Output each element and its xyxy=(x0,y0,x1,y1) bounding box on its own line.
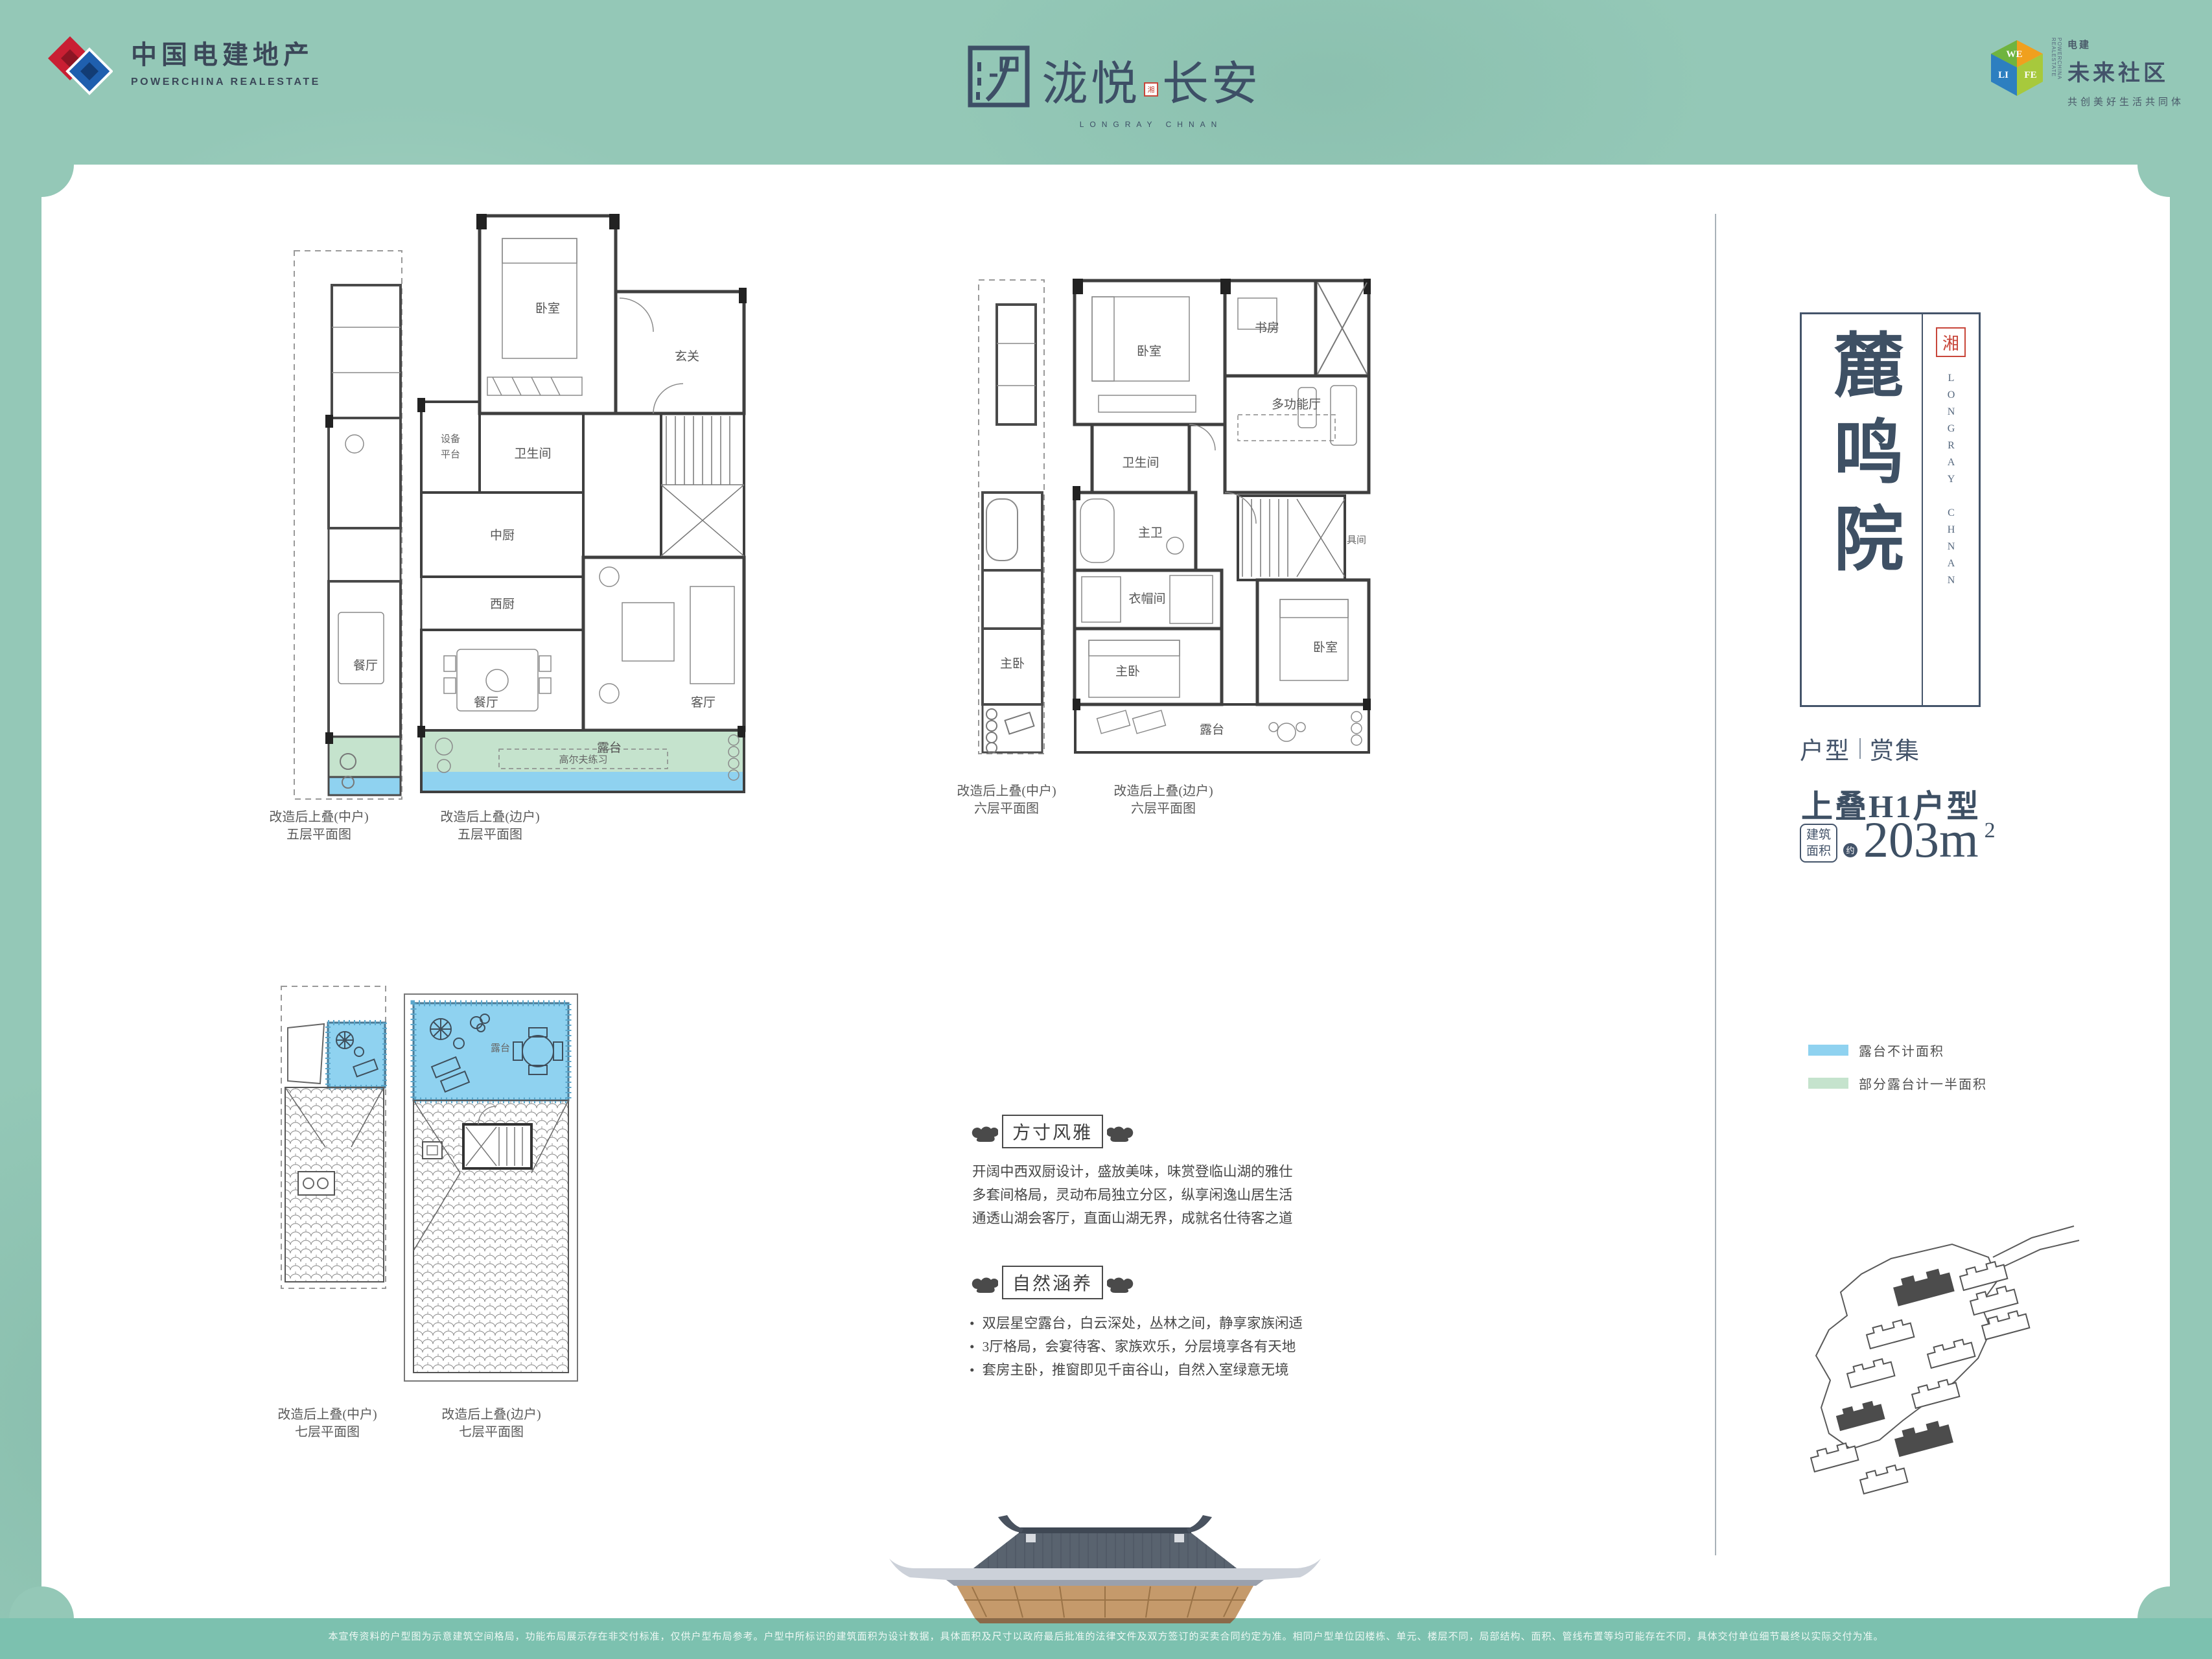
room-label-bath: 卫生间 xyxy=(514,447,551,461)
room-label-study: 书房 xyxy=(1255,321,1279,335)
legend-swatch-green xyxy=(1808,1078,1848,1089)
powerchina-logo: 中国电建地产 POWERCHINA REALESTATE xyxy=(47,34,321,96)
cloud-ornament-icon xyxy=(1107,1271,1135,1294)
floorplan-7f-mid xyxy=(280,985,387,1290)
section-nature-header: 自然涵养 xyxy=(970,1266,1135,1299)
section-elegance-body: 开阔中西双厨设计，盛放美味，味赏登临山湖的雅仕 多套间格局，灵动布局独立分区，纵… xyxy=(972,1160,1293,1230)
area-box-label: 建筑面积 xyxy=(1800,824,1837,863)
room-label-tool: 具间 xyxy=(1347,535,1366,546)
series-divider xyxy=(1859,738,1861,759)
plan-caption-5f-mid: 改造后上叠(中户)五层平面图 xyxy=(269,809,368,844)
section-nature-title: 自然涵养 xyxy=(1002,1266,1103,1299)
room-label-foyer: 玄关 xyxy=(675,349,699,364)
cube-letters-fe: FE xyxy=(2024,70,2036,80)
legend-item-blue: 露台不计面积 xyxy=(1808,1041,1987,1060)
legend-swatch-blue xyxy=(1808,1045,1848,1056)
powerchina-diamond-icon xyxy=(47,34,113,96)
powerchina-name-cn: 中国电建地产 xyxy=(131,34,321,71)
area-number: 203m xyxy=(1863,818,1979,863)
plaque-title: 麓鸣院 xyxy=(1827,329,1897,589)
room-label-bedroom: 卧室 xyxy=(1137,344,1161,358)
room-label-bedroom2: 卧室 xyxy=(1313,640,1338,655)
area-row: 建筑面积 约 203m 2 xyxy=(1800,818,1996,863)
cloud-ornament-icon xyxy=(970,1271,998,1294)
room-label-mbath: 主卫 xyxy=(1138,526,1163,540)
name-plaque: 麓鸣院 湘 LONGRAY CHNAN xyxy=(1800,312,1981,707)
legend-item-green: 部分露台计一半面积 xyxy=(1808,1074,1987,1093)
powerchina-name-en: POWERCHINA REALESTATE xyxy=(131,76,321,88)
room-label-bath: 卫生间 xyxy=(1122,456,1159,470)
welife-cube-icon: WE LI FE xyxy=(1988,38,2045,97)
cloud-ornament-icon xyxy=(970,1120,998,1143)
chinese-roof-illustration xyxy=(875,1507,1335,1636)
section-nature-body: 双层星空露台，白云深处，丛林之间，静享家族闲适 3厅格局，会宴待客、家族欢乐，分… xyxy=(970,1312,1303,1382)
room-label-multi: 多功能厅 xyxy=(1272,397,1321,412)
approx-badge: 约 xyxy=(1843,843,1857,857)
plan-caption-6f-mid: 改造后上叠(中户)六层平面图 xyxy=(957,783,1056,818)
card-corner-scoop xyxy=(9,132,74,197)
section-elegance-header: 方寸风雅 xyxy=(970,1115,1135,1148)
plaque-en: LONGRAY CHNAN xyxy=(1945,373,1957,592)
welife-slogan: 共创美好生活共同体 xyxy=(2067,95,2184,108)
room-label-living: 客厅 xyxy=(691,695,716,710)
brand-name-right: 长安 xyxy=(1162,45,1261,113)
brand-logo: 泷悦 湘 长安 LONGRAY CHNAN xyxy=(968,45,1261,129)
card-corner-scoop xyxy=(2137,132,2202,197)
cube-letters-we: WE xyxy=(2006,49,2022,60)
plan-caption-7f-edge: 改造后上叠(边户)七层平面图 xyxy=(441,1406,541,1441)
brand-name-en: LONGRAY CHNAN xyxy=(1042,120,1261,129)
room-label-terrace: 露台 xyxy=(491,1043,510,1054)
legend: 露台不计面积 部分露台计一半面积 xyxy=(1808,1041,1987,1107)
room-label-master: 主卧 xyxy=(1115,664,1140,679)
room-label-dining-mid: 餐厅 xyxy=(353,658,378,673)
series-title: 户型 赏集 xyxy=(1800,731,1920,766)
room-label-equip1: 设备 xyxy=(441,434,460,445)
room-label-master-mid: 主卧 xyxy=(1000,656,1025,671)
vertical-divider xyxy=(1715,214,1716,1555)
floorplan-7f-edge: 露台 xyxy=(402,992,580,1384)
brand-seal-icon: 湘 xyxy=(1144,82,1158,97)
section-elegance-title: 方寸风雅 xyxy=(1002,1115,1103,1148)
room-label-golf: 高尔夫练习 xyxy=(559,754,607,765)
cube-letters-li: LI xyxy=(1998,70,2008,80)
plan-caption-7f-mid: 改造后上叠(中户)七层平面图 xyxy=(277,1406,377,1441)
floorplan-6f-mid: 主卧 xyxy=(977,279,1045,755)
brand-name-left: 泷悦 xyxy=(1042,45,1140,113)
room-label-dining: 餐厅 xyxy=(474,695,498,710)
welife-logo: WE LI FE POWERCHINA REALESTATE 电建 未来社区 共… xyxy=(1988,38,2184,108)
plan-caption-6f-edge: 改造后上叠(边户)六层平面图 xyxy=(1113,783,1213,818)
room-label-equip2: 平台 xyxy=(441,449,460,460)
room-label-terrace: 露台 xyxy=(597,741,622,755)
brand-square-icon xyxy=(968,45,1030,110)
welife-vertical-text: POWERCHINA REALESTATE xyxy=(2051,38,2062,93)
room-label-bedroom: 卧室 xyxy=(535,301,560,316)
area-superscript: 2 xyxy=(1985,818,1996,843)
floorplan-6f-edge: 卧室 书房 卫生间 多功能厅 主卫 衣帽间 主卧 卧室 具间 露台 xyxy=(1073,279,1371,755)
floorplan-5f-edge: 卧室 玄关 卫生间 设备 平台 中厨 西厨 餐厅 客厅 露台 高尔夫练习 xyxy=(415,214,752,800)
room-label-wkitchen: 西厨 xyxy=(490,597,515,611)
room-label-ckitchen: 中厨 xyxy=(490,528,515,542)
room-label-terrace: 露台 xyxy=(1200,723,1224,737)
room-label-closet: 衣帽间 xyxy=(1128,592,1165,606)
plan-caption-5f-edge: 改造后上叠(边户)五层平面图 xyxy=(440,809,539,844)
welife-small: 电建 xyxy=(2067,38,2184,51)
plaque-seal-icon: 湘 xyxy=(1936,327,1966,357)
site-plan-map xyxy=(1795,1218,2126,1516)
welife-big: 未来社区 xyxy=(2067,55,2184,87)
cloud-ornament-icon xyxy=(1107,1120,1135,1143)
floorplan-5f-mid: 餐厅 xyxy=(293,249,403,800)
